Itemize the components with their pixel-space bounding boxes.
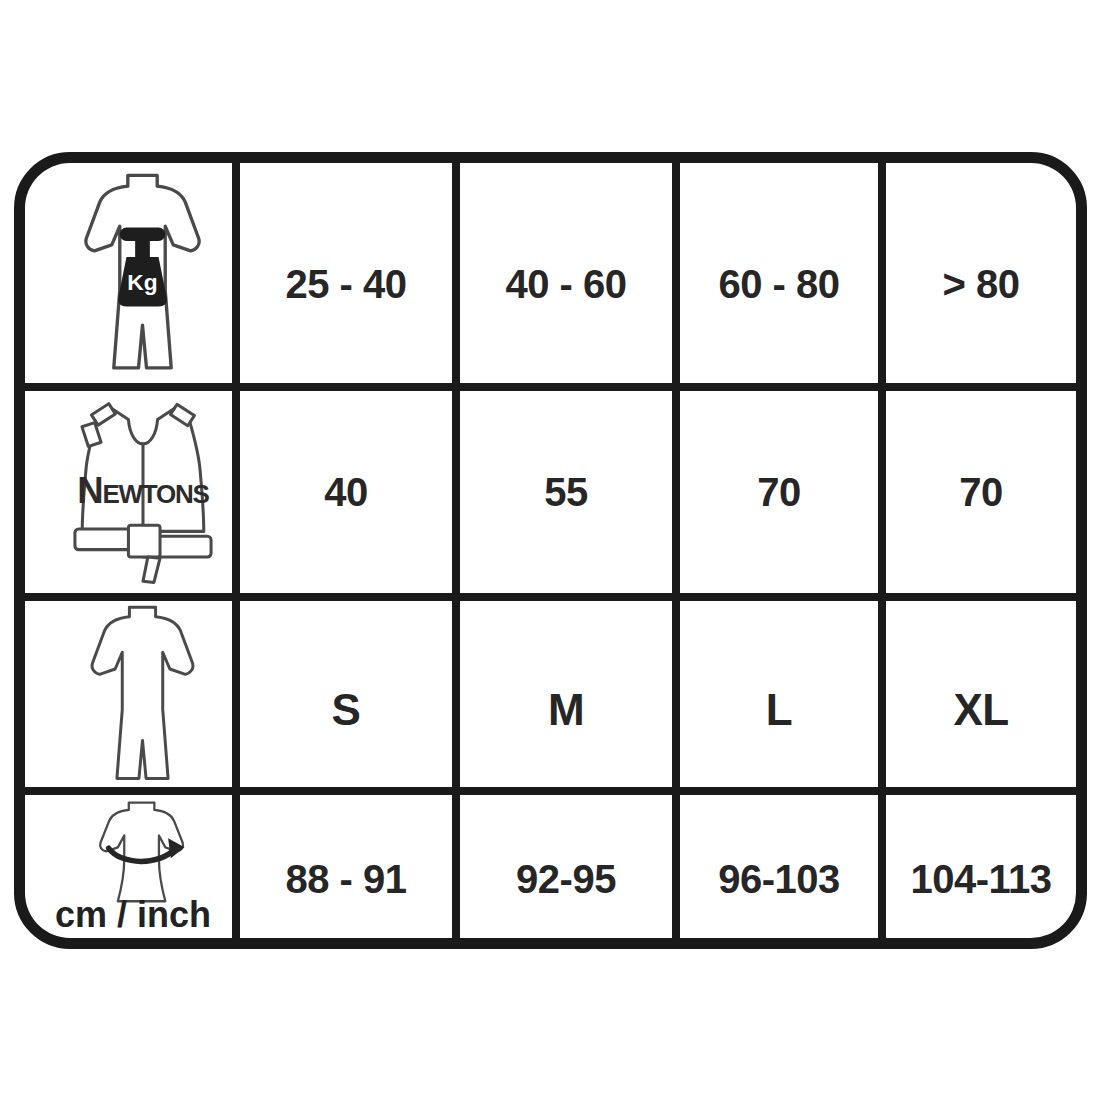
newtons-unit-label: Newtons [77,470,209,511]
buoyancy-vest-newtons-icon: Newtons [64,395,222,590]
chest-row-header: cm / inch [25,795,232,938]
body-weight-kg-icon: Kg [69,167,216,379]
weight-range-cell: 25 - 40 [240,163,452,383]
shorty-wetsuit-size-icon [77,601,208,787]
weight-row-header: Kg [25,163,232,383]
chest-range-cell: 92-95 [460,795,672,938]
chest-range-cell: 88 - 91 [240,795,452,938]
size-cell: M [460,601,672,787]
size-cell: L [680,601,878,787]
weight-range-cell: > 80 [886,163,1076,383]
kg-weight-icon: Kg [118,228,167,307]
weight-range-cell: 40 - 60 [460,163,672,383]
size-cell: XL [886,601,1076,787]
chest-circumference-icon [74,797,211,905]
size-chart-table: Kg 25 - 40 40 - 60 60 - 80 > 80 Newtons [14,152,1087,949]
cm-inch-unit-label: cm / inch [55,894,211,936]
size-chart-image: Kg 25 - 40 40 - 60 60 - 80 > 80 Newtons [0,0,1100,1100]
buoyancy-value-cell: 70 [680,391,878,593]
kg-unit-label: Kg [127,269,157,295]
weight-range-cell: 60 - 80 [680,163,878,383]
buoyancy-value-cell: 40 [240,391,452,593]
vest-strap-tail [143,556,160,582]
chest-range-cell: 104-113 [886,795,1076,938]
buoyancy-value-cell: 70 [886,391,1076,593]
buoyancy-value-cell: 55 [460,391,672,593]
buoyancy-row-header: Newtons [25,391,232,593]
chest-range-cell: 96-103 [680,795,878,938]
size-row-header [25,601,232,787]
size-cell: S [240,601,452,787]
